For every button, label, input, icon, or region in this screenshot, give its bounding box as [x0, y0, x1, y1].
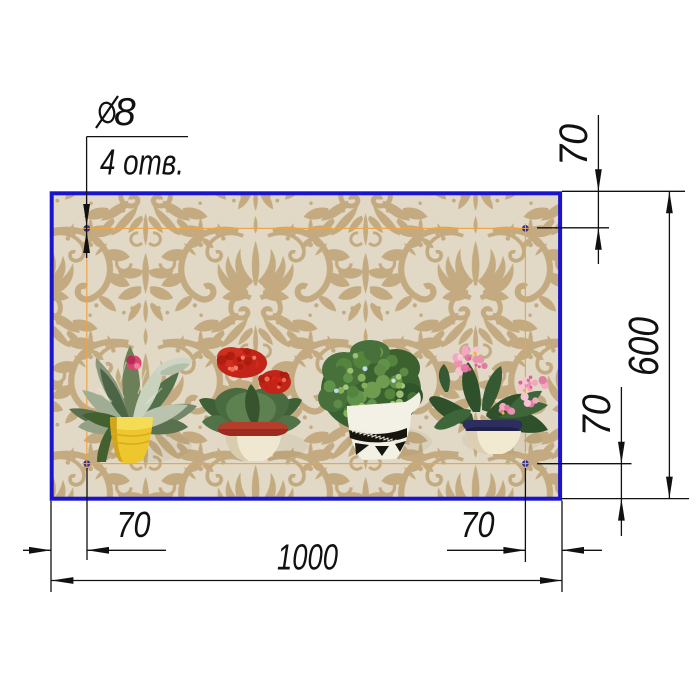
- svg-text:70: 70: [575, 394, 619, 436]
- svg-text:4 отв.: 4 отв.: [100, 142, 184, 183]
- svg-text:70: 70: [117, 504, 151, 545]
- svg-text:1000: 1000: [277, 537, 338, 578]
- svg-text:70: 70: [461, 504, 495, 545]
- svg-text:8: 8: [114, 91, 136, 134]
- svg-text:600: 600: [620, 317, 668, 376]
- svg-text:70: 70: [552, 124, 596, 166]
